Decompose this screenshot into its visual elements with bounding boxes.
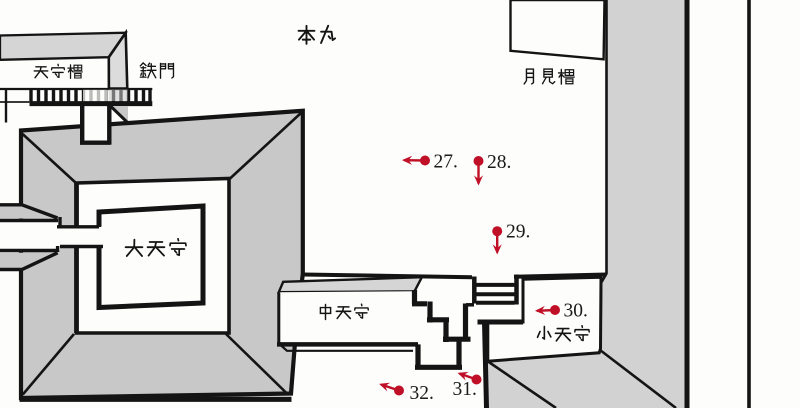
svg-text:29.: 29. <box>506 222 530 243</box>
svg-text:27.: 27. <box>434 152 458 173</box>
svg-text:30.: 30. <box>564 301 588 322</box>
svg-text:32.: 32. <box>410 383 434 404</box>
svg-text:28.: 28. <box>487 152 511 173</box>
svg-text:31.: 31. <box>453 379 477 400</box>
